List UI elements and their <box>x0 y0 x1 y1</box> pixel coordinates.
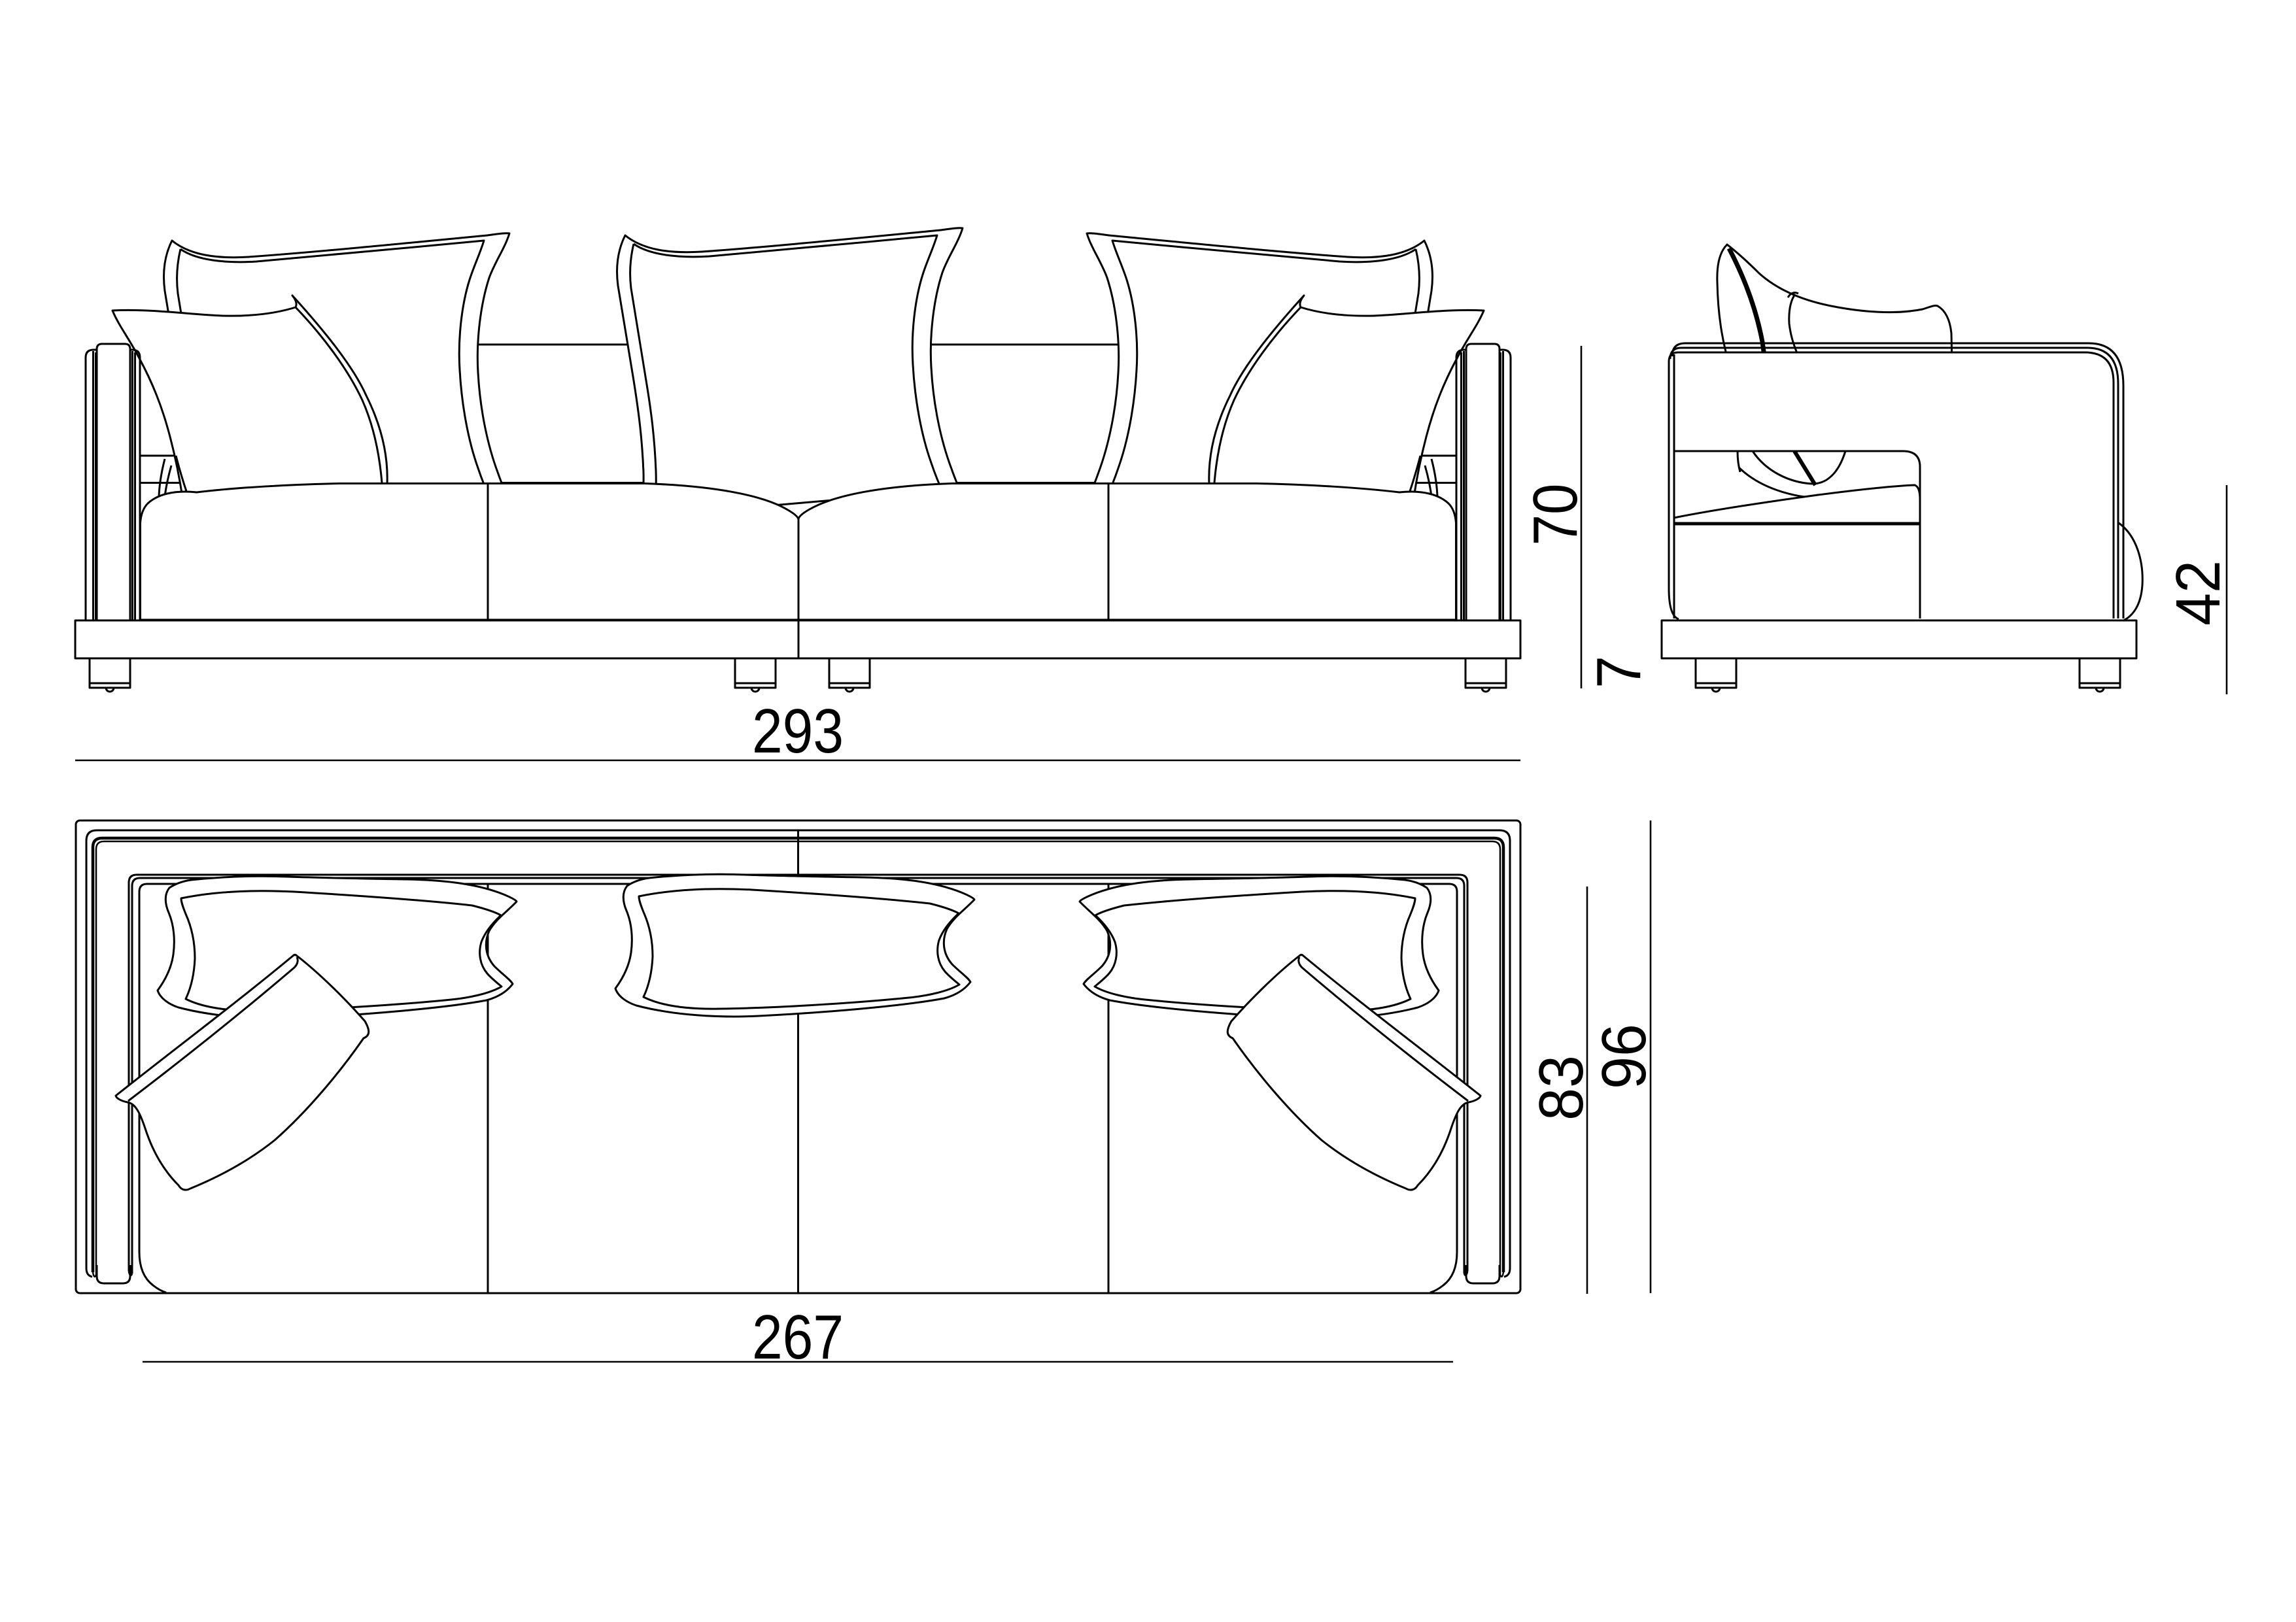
svg-text:70: 70 <box>1520 484 1590 546</box>
svg-text:83: 83 <box>1526 1055 1596 1121</box>
svg-text:7: 7 <box>1584 656 1654 688</box>
svg-text:96: 96 <box>1589 1024 1659 1089</box>
svg-text:42: 42 <box>2163 560 2233 626</box>
svg-text:293: 293 <box>752 696 844 766</box>
svg-text:267: 267 <box>752 1302 844 1372</box>
